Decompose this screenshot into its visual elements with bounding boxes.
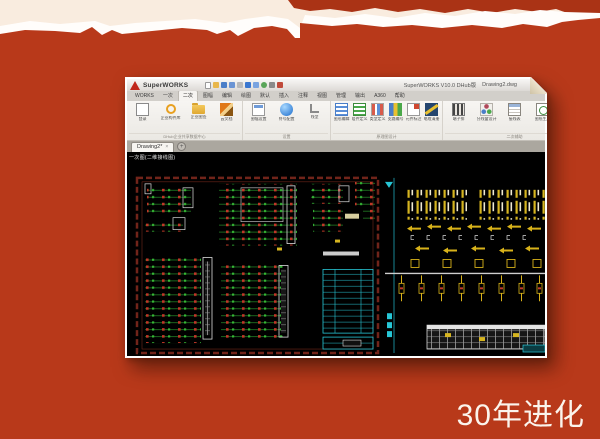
file-tab-label: Drawing2* (137, 144, 162, 151)
page-curl (530, 77, 547, 94)
ribbon-button-label: 图形编辑 (334, 117, 350, 122)
slide-caption: 30年进化 (457, 390, 585, 434)
ribbon-button-0-2[interactable]: 企业图签 (185, 102, 212, 120)
ribbon-tab-4[interactable]: 编辑 (218, 91, 236, 101)
ribbon-button-1-0[interactable]: 图幅设置 (245, 102, 272, 122)
ribbon-tab-8[interactable]: 注释 (294, 91, 312, 101)
file-tab-drawing2[interactable]: Drawing2* × (131, 142, 174, 152)
lshape-icon (310, 104, 319, 113)
title-bar: SuperWORKS SuperWORKS V10.0 DHub版 Drawin… (127, 79, 545, 91)
ribbon-tab-7[interactable]: 插入 (275, 91, 293, 101)
file-tab-bar: Drawing2* × + (127, 141, 545, 152)
ribbon-button-2-2[interactable]: 类型定义 (369, 102, 386, 122)
ribbon-button-label: 类型定义 (370, 117, 386, 122)
undo-icon[interactable] (245, 82, 251, 88)
print-icon[interactable] (237, 82, 243, 88)
ribbon-button-label: 接线表 (509, 117, 521, 122)
ribbon-button-label: 端子排 (453, 117, 465, 122)
ribbon-button-label: 分线盒设计 (477, 117, 497, 122)
frame-icon (252, 103, 265, 116)
cad-drawing (127, 152, 545, 356)
ribbon: 登录企业构件库企业图签云文档DHub企业共享数据中心图幅设置符号配置线型设置图形… (127, 101, 545, 141)
slide-background: SuperWORKS SuperWORKS V10.0 DHub版 Drawin… (0, 0, 600, 439)
quick-access-toolbar (205, 82, 283, 89)
ribbon-button-0-1[interactable]: 企业构件库 (157, 102, 184, 121)
ribbon-button-label: 元件标注 (406, 117, 422, 122)
table-icon (508, 103, 521, 116)
ribbon-tab-11[interactable]: 输出 (351, 91, 369, 101)
ball-icon (280, 103, 293, 116)
redo-icon[interactable] (253, 82, 259, 88)
ribbon-tab-10[interactable]: 管理 (332, 91, 350, 101)
grid-green-icon (353, 103, 366, 116)
ribbon-button-3-2[interactable]: 接线表 (501, 102, 528, 122)
ribbon-tab-0[interactable]: WORKS (131, 91, 158, 101)
canvas-caption: 一次图(二维接线图) (129, 154, 175, 161)
mini-table-icon[interactable]: ▾ (589, 103, 598, 111)
ribbon-group-3: 端子排分线盒设计接线表图纸生成报表输出二次辅助 (443, 101, 587, 140)
table-icon (564, 103, 577, 116)
save-icon[interactable] (221, 82, 227, 88)
close-tab-icon[interactable]: × (165, 144, 168, 151)
gen-icon (536, 103, 549, 116)
ribbon-button-label: 图纸生成 (535, 117, 551, 122)
ribbon-button-label: 支路编号 (388, 117, 404, 122)
window-icon[interactable] (269, 82, 275, 88)
ribbon-button-0-0[interactable]: 登录 (129, 102, 156, 122)
drawing-canvas[interactable]: 一次图(二维接线图) (127, 152, 545, 356)
ribbon-button-2-5[interactable]: 电缆清册 (423, 102, 440, 122)
ribbon-group-label: 设置 (245, 133, 328, 140)
folder-icon (192, 105, 205, 114)
term-icon (452, 103, 465, 116)
pen-icon (220, 103, 233, 116)
app-title: SuperWORKS (143, 82, 188, 89)
ribbon-group-2: 图形编辑组件定义类型定义支路编号元件标注电缆清册原理图设计 (331, 101, 443, 140)
ribbon-button-3-3[interactable]: 图纸生成 (529, 102, 556, 122)
ribbon-button-label: 企业构件库 (161, 116, 181, 121)
ribbon-button-label: 图幅设置 (251, 117, 267, 122)
ribbon-button-label: 报表输出 (563, 117, 579, 122)
ring-icon (166, 104, 176, 114)
ribbon-button-2-3[interactable]: 支路编号 (387, 102, 404, 122)
ribbon-tab-2[interactable]: 二次 (178, 90, 198, 101)
ribbon-button-2-0[interactable]: 图形编辑 (333, 102, 350, 122)
save-as-icon[interactable] (229, 82, 235, 88)
close-icon[interactable] (277, 82, 283, 88)
app-logo-icon[interactable] (130, 81, 140, 90)
mini-list-icon[interactable]: ▾ (589, 121, 598, 129)
ribbon-tab-row: WORKS一次二次图幅编辑绘图默认插入注释视图管理输出A360帮助 (127, 91, 545, 101)
ribbon-group-label: 原理图设计 (333, 133, 440, 140)
app-version-label: SuperWORKS V10.0 DHub版 (404, 81, 476, 89)
ribbon-button-label: 组件定义 (352, 117, 368, 122)
ribbon-button-3-0[interactable]: 端子排 (445, 102, 472, 122)
torn-paper-edge (0, 0, 600, 46)
ribbon-button-3-4[interactable]: 报表输出 (557, 102, 584, 122)
cable-icon (425, 103, 438, 116)
ribbon-tab-9[interactable]: 视图 (313, 91, 331, 101)
ribbon-button-3-1[interactable]: 分线盒设计 (473, 102, 500, 122)
ribbon-button-label: 线型 (311, 115, 319, 120)
ribbon-button-label: 电缆清册 (424, 117, 440, 122)
ribbon-overflow-column: ▾▾▾ (587, 101, 600, 140)
tag-icon (407, 103, 420, 116)
grid-blue-icon (335, 103, 348, 116)
ribbon-button-label: 企业图签 (191, 115, 207, 120)
ribbon-group-0: 登录企业构件库企业图签云文档DHub企业共享数据中心 (127, 101, 243, 140)
grid-red-icon (371, 103, 384, 116)
refresh-icon[interactable] (261, 82, 267, 88)
document-filename: Drawing2.dwg (482, 82, 517, 88)
ribbon-tab-13[interactable]: 帮助 (391, 91, 409, 101)
ribbon-group-label: 二次辅助 (445, 133, 584, 140)
document-title: SuperWORKS V10.0 DHub版 Drawing2.dwg (404, 79, 517, 91)
app-window-shadow: SuperWORKS SuperWORKS V10.0 DHub版 Drawin… (125, 77, 547, 358)
ribbon-button-label: 云文档 (221, 117, 233, 122)
new-doc-icon[interactable] (205, 82, 211, 89)
new-tab-button[interactable]: + (177, 142, 186, 151)
ribbon-tab-1[interactable]: 一次 (159, 91, 177, 101)
open-folder-icon[interactable] (213, 82, 219, 88)
ribbon-tab-3[interactable]: 图幅 (199, 91, 217, 101)
ribbon-group-1: 图幅设置符号配置线型设置 (243, 101, 331, 140)
ribbon-button-2-1[interactable]: 组件定义 (351, 102, 368, 122)
ribbon-button-1-1[interactable]: 符号配置 (273, 102, 300, 122)
flag-icon (389, 103, 402, 116)
ribbon-group-label: DHub企业共享数据中心 (129, 133, 240, 140)
mini-grid-icon[interactable]: ▾ (589, 112, 598, 120)
app-window: SuperWORKS SuperWORKS V10.0 DHub版 Drawin… (125, 77, 547, 358)
ribbon-tab-5[interactable]: 绘图 (237, 91, 255, 101)
panel-icon (136, 103, 149, 116)
ribbon-button-0-3[interactable]: 云文档 (213, 102, 240, 122)
ribbon-button-1-2[interactable]: 线型 (301, 102, 328, 120)
ribbon-button-label: 登录 (139, 117, 147, 122)
ribbon-button-label: 符号配置 (279, 117, 295, 122)
ribbon-button-2-4[interactable]: 元件标注 (405, 102, 422, 122)
tree-icon (480, 103, 493, 116)
ribbon-tab-6[interactable]: 默认 (256, 91, 274, 101)
ribbon-tab-12[interactable]: A360 (370, 91, 390, 101)
